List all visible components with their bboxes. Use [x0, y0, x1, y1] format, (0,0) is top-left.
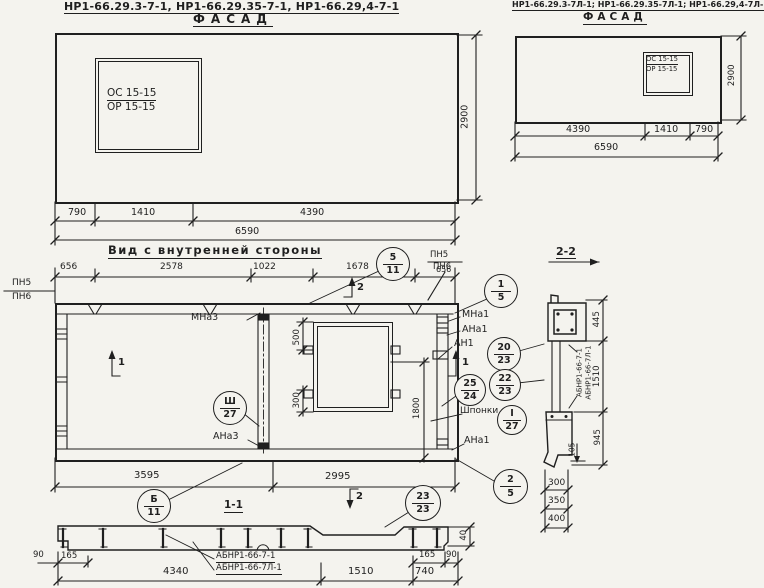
- callout-bottom: 23: [416, 504, 429, 515]
- dim-790: 790: [68, 208, 86, 218]
- dim-105: 105: [568, 425, 576, 475]
- section-marker-2-top: 2: [357, 283, 364, 293]
- dim-945: 945: [594, 412, 603, 462]
- label-pn6-right: ПН6: [433, 263, 451, 272]
- label-ana3: АНа3: [213, 432, 239, 442]
- label-pn5-left: ПН5: [12, 279, 31, 288]
- dim-445: 445: [593, 294, 602, 344]
- callout-bottom: 11: [147, 507, 160, 518]
- callout-bottom: 27: [223, 409, 236, 420]
- dim-2900: 2900: [728, 50, 737, 100]
- dim-3595: 3595: [134, 471, 159, 481]
- inner-view-window-inner: [317, 326, 389, 408]
- window-mark-top: ОС 15-15: [107, 88, 156, 101]
- label-mna1: МНа1: [462, 310, 489, 320]
- section-marker-2-bottom: 2: [356, 492, 363, 502]
- mark-abnr1: АБНР1-66-7-1: [216, 552, 275, 563]
- dim-400-w: 400: [548, 515, 565, 524]
- dim-165-right: 165: [419, 551, 435, 560]
- dim-90-left: 90: [33, 551, 44, 560]
- dim-6590: 6590: [594, 143, 618, 153]
- mark-abnr1-l: АБНР1-66-7Л-1: [216, 564, 282, 575]
- dim-1410: 1410: [654, 125, 678, 135]
- callout-top: 25: [461, 379, 480, 391]
- callout-20-23: 20 23: [487, 337, 521, 371]
- label-mna3: МНа3: [191, 313, 218, 323]
- callout-bottom: 23: [497, 355, 510, 366]
- dim-1800: 1800: [413, 383, 422, 433]
- callout-2-5: 2 5: [493, 469, 528, 504]
- dim-1410: 1410: [131, 208, 155, 218]
- callout-top: 23: [412, 492, 433, 504]
- dim-2578: 2578: [160, 263, 183, 272]
- dim-300-w: 300: [548, 479, 565, 488]
- inner-view-panel-outline: [55, 303, 459, 462]
- callout-bottom: 23: [498, 386, 511, 397]
- facade-left-subtitle: Фасад: [193, 13, 273, 27]
- dim-40: 40: [460, 520, 469, 550]
- callout-25-24: 25 24: [454, 374, 486, 406]
- dim-790: 790: [695, 125, 713, 135]
- inner-view-window-outline: [313, 322, 393, 412]
- inner-view-title: Вид с внутренней стороны: [108, 245, 322, 259]
- callout-top: 22: [496, 374, 515, 386]
- dim-4390: 4390: [300, 208, 324, 218]
- callout-bottom: 5: [507, 487, 514, 498]
- engineering-drawing-sheet: НР1-66.29.3-7-1, НР1-66.29.35-7-1, НР1-6…: [0, 0, 764, 588]
- callout-bottom: 24: [463, 391, 476, 402]
- dim-4340: 4340: [163, 567, 188, 577]
- dim-4390: 4390: [566, 125, 590, 135]
- label-pn5-right: ПН5: [430, 251, 448, 260]
- inner-bottom-dim-lines: [51, 458, 459, 492]
- callout-top: 5: [383, 253, 403, 265]
- dim-90-right: 90: [446, 551, 457, 560]
- callout-bottom: 27: [505, 421, 518, 432]
- dim-1510: 1510: [348, 567, 373, 577]
- callout-top: Б: [144, 495, 164, 507]
- facade-right-title: НР1-66.29.3-7Л-1; НР1-66.29.35-7Л-1; НР1…: [512, 1, 764, 11]
- dim-1678: 1678: [346, 263, 369, 272]
- facade-left-window-mark: ОС 15-15 ОР 15-15: [107, 88, 156, 112]
- section-marker-1-left: 1: [118, 358, 125, 368]
- callout-1-5: 1 5: [484, 274, 518, 308]
- window-mark-top: ОС 15-15: [646, 56, 678, 65]
- section-1-1-title: 1-1: [224, 500, 243, 513]
- section-2-2-title: 2-2: [556, 246, 576, 259]
- dim-6590: 6590: [235, 227, 259, 237]
- label-shponki: Шпонки: [460, 407, 498, 416]
- dim-350-w: 350: [548, 497, 565, 506]
- callout-top: 20: [494, 343, 514, 355]
- callout-B-11: Б 11: [137, 489, 171, 523]
- dim-300: 300: [293, 385, 302, 415]
- callout-top: 1: [491, 280, 511, 292]
- callout-bottom: 11: [386, 265, 399, 276]
- dim-1510-vert: 1510: [593, 351, 602, 401]
- facade-right-window-mark: ОС 15-15 ОР 15-15: [646, 56, 678, 73]
- facade-right-subtitle: Фасад: [583, 12, 647, 25]
- callout-top: Ш: [220, 397, 240, 409]
- dim-165-left: 165: [61, 552, 77, 561]
- label-ana1: АНа1: [462, 325, 488, 335]
- callout-top: I: [503, 409, 520, 421]
- dim-656: 656: [60, 263, 77, 272]
- dim-2995: 2995: [325, 472, 350, 482]
- window-mark-bottom: ОР 15-15: [107, 101, 156, 113]
- callout-III-27: Ш 27: [213, 391, 247, 425]
- callout-22-23: 22 23: [489, 369, 521, 401]
- dim-500: 500: [293, 322, 302, 352]
- dim-1022: 1022: [253, 263, 276, 272]
- callout-bottom: 5: [498, 292, 505, 303]
- dim-2900: 2900: [460, 92, 470, 142]
- section-marker-1-right: 1: [462, 358, 469, 368]
- dim-740: 740: [415, 567, 434, 577]
- callout-top: 2: [500, 475, 520, 487]
- callout-23-23: 23 23: [405, 485, 441, 521]
- callout-5-11: 5 11: [376, 247, 410, 281]
- label-ana1-bottom: АНа1: [464, 436, 490, 446]
- callout-I-27: I 27: [497, 405, 527, 435]
- label-pn6-left: ПН6: [12, 293, 31, 302]
- window-mark-bottom: ОР 15-15: [646, 65, 678, 73]
- mark-abnr1-rot: АБНР1-66-7-1: [577, 338, 584, 408]
- label-an1: АН1: [454, 339, 474, 349]
